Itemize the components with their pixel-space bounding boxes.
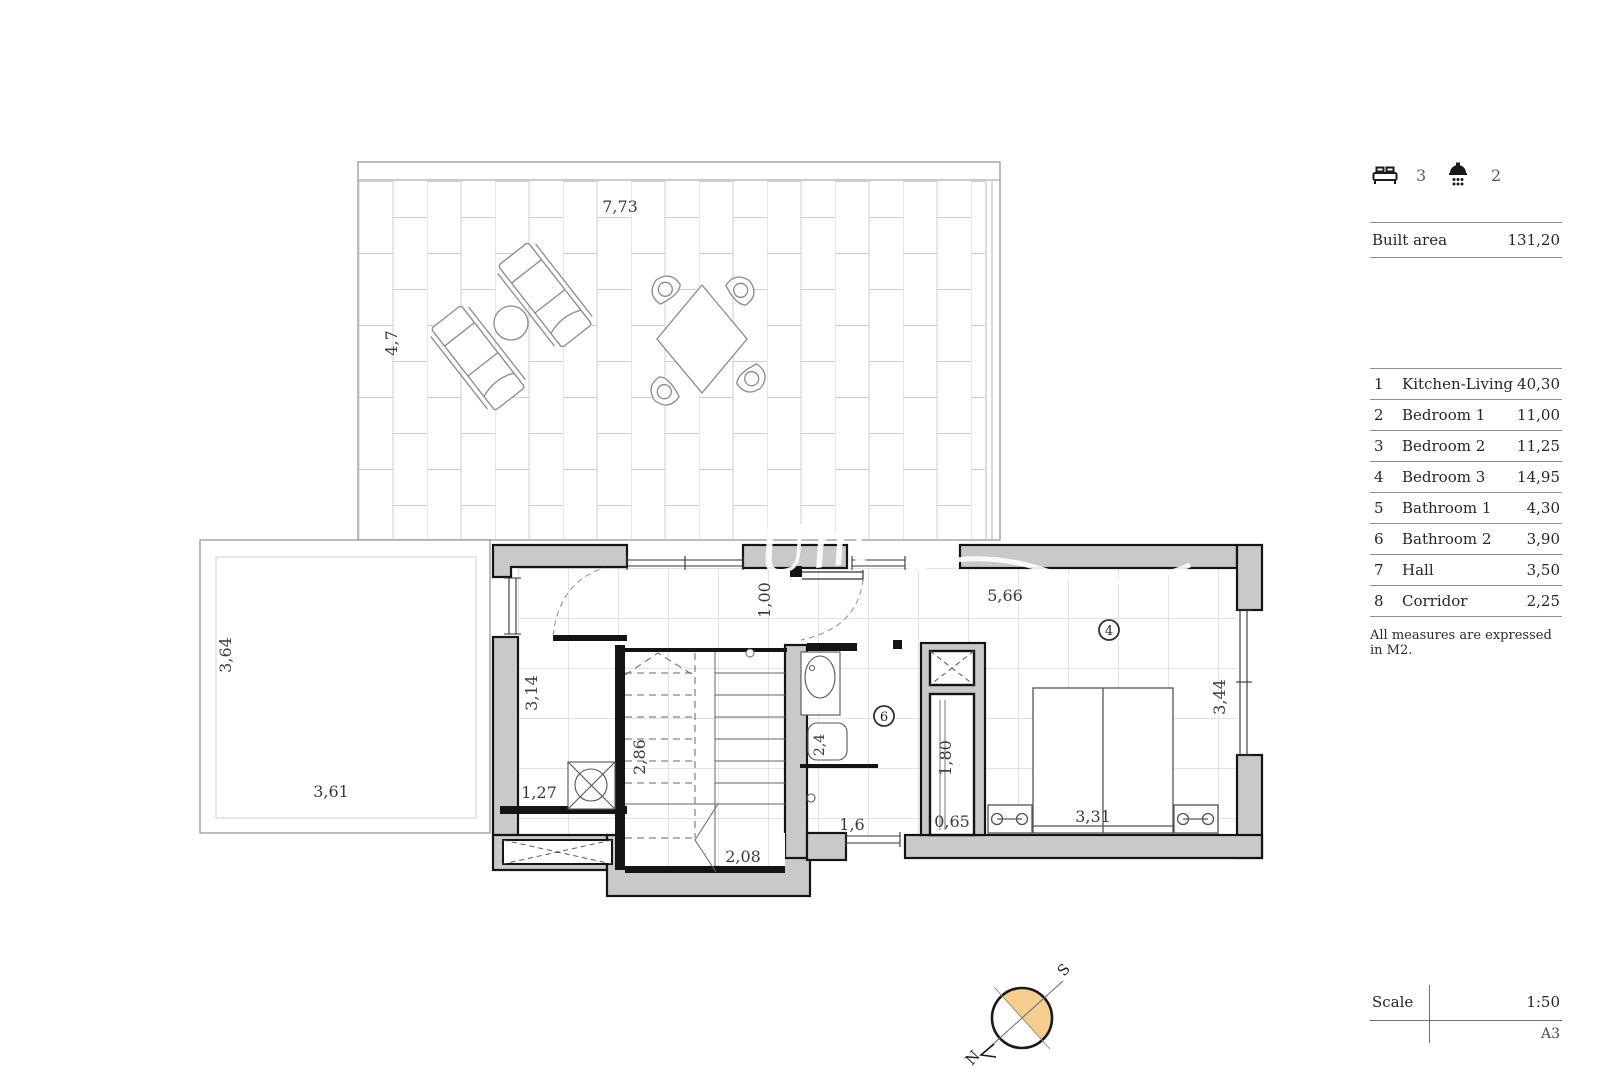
dim-terrace-depth: 4,7	[382, 330, 401, 355]
closet-column: 1,80 0,65	[930, 651, 974, 835]
wall-bottom-mid	[807, 833, 846, 860]
wall-bottom-right	[905, 835, 1262, 858]
bedrooms-count: 3	[1416, 166, 1426, 185]
room-area: 11,25	[1517, 437, 1562, 455]
summary-icons: 3 2	[1370, 160, 1562, 196]
scale-divider	[1429, 985, 1430, 1043]
scale-label: Scale	[1372, 993, 1413, 1011]
dim-closet-width: 0,65	[934, 812, 970, 831]
watermark-text: Um	[753, 504, 872, 590]
dim-closet-depth: 1,80	[936, 740, 955, 776]
room-name: Bedroom 1	[1402, 406, 1517, 424]
built-area-row: Built area 131,20	[1370, 222, 1562, 258]
info-panel: 3 2 Built area 131,20 1 Kitchen-Living 4…	[1370, 0, 1562, 1080]
wall-left	[493, 637, 518, 835]
built-area-value: 131,20	[1508, 231, 1561, 249]
table-row: 3 Bedroom 2 11,25	[1370, 430, 1562, 461]
room-area: 3,90	[1527, 530, 1562, 548]
stair-post	[746, 649, 754, 657]
dim-bath-window: 1,6	[839, 815, 864, 834]
dim-bedroom-depth: 3,44	[1210, 679, 1229, 715]
room-name: Corridor	[1402, 592, 1527, 610]
scale-block: Scale 1:50 A3	[1370, 985, 1562, 1042]
room-marker-bathroom2-label: 6	[880, 710, 888, 725]
side-table	[494, 306, 528, 340]
wall-top-right	[960, 545, 1237, 568]
room-area: 3,50	[1527, 561, 1562, 579]
room-marker-bedroom3-label: 4	[1105, 624, 1113, 639]
wall-stair-bottom	[625, 866, 785, 873]
table-row: 1 Kitchen-Living 40,30	[1370, 368, 1562, 399]
sink-basin	[805, 656, 835, 698]
room-id: 8	[1370, 592, 1402, 610]
room-id: 6	[1370, 530, 1402, 548]
dim-stair-depth: 2,86	[630, 739, 649, 775]
room-area: 14,95	[1517, 468, 1562, 486]
room-name: Bedroom 2	[1402, 437, 1517, 455]
annex-terrace: 3,64 3,61	[200, 540, 490, 833]
table-row: 4 Bedroom 3 14,95	[1370, 461, 1562, 492]
dim-bed-width: 3,31	[1075, 807, 1111, 826]
north-arrow	[981, 1044, 996, 1057]
room-area: 4,30	[1527, 499, 1562, 517]
bath-half-wall	[800, 764, 878, 768]
utility-door-leaf	[553, 635, 627, 641]
room-id: 3	[1370, 437, 1402, 455]
bathrooms-count: 2	[1491, 166, 1501, 185]
room-id: 2	[1370, 406, 1402, 424]
bath-door-leaf	[893, 640, 902, 649]
shower-icon	[1446, 160, 1470, 192]
table-row: 5 Bathroom 1 4,30	[1370, 492, 1562, 523]
stair-floor-grid	[625, 833, 785, 870]
terrace-tiles	[359, 181, 985, 539]
wall-right-upper	[1237, 545, 1262, 610]
compass-north-label: N	[962, 1047, 984, 1069]
room-name: Kitchen-Living	[1402, 375, 1517, 393]
room-name: Bathroom 1	[1402, 499, 1527, 517]
table-row: 8 Corridor 2,25	[1370, 585, 1562, 616]
scale-value: 1:50	[1526, 993, 1560, 1011]
floor-plan-sheet: 7,73 4,7 3,64 3,61	[0, 0, 1620, 1080]
room-id: 7	[1370, 561, 1402, 579]
wall-stair-top	[625, 648, 787, 652]
room-id: 1	[1370, 375, 1402, 393]
sheet-size: A3	[1370, 1021, 1562, 1042]
terrace: 7,73 4,7	[358, 162, 1000, 540]
table-row: 6 Bathroom 2 3,90	[1370, 523, 1562, 554]
compass-rose: N S	[962, 960, 1074, 1069]
wall-stair-left	[615, 645, 625, 870]
dim-hall-length: 5,66	[987, 586, 1023, 605]
dim-utility-depth: 3,14	[522, 675, 541, 711]
room-area: 11,00	[1517, 406, 1562, 424]
room-area: 2,25	[1527, 592, 1562, 610]
room-id: 5	[1370, 499, 1402, 517]
room-name: Hall	[1402, 561, 1527, 579]
room-area: 40,30	[1517, 375, 1562, 393]
built-area-label: Built area	[1372, 231, 1447, 249]
dim-shower-width: 2,4	[812, 734, 828, 756]
table-row: 7 Hall 3,50	[1370, 554, 1562, 585]
compass-south-label: S	[1054, 960, 1074, 980]
dim-stair-width: 2,08	[725, 847, 761, 866]
room-name: Bathroom 2	[1402, 530, 1527, 548]
dim-terrace-width: 7,73	[602, 197, 638, 216]
dim-utility-width: 1,27	[521, 783, 557, 802]
units-note: All measures are expressed in M2.	[1370, 628, 1562, 658]
bed-icon	[1372, 162, 1398, 190]
room-id: 4	[1370, 468, 1402, 486]
table-row: 2 Bedroom 1 11,00	[1370, 399, 1562, 430]
room-areas-table: 1 Kitchen-Living 40,30 2 Bedroom 1 11,00…	[1370, 368, 1562, 617]
wall-bath-top	[807, 643, 857, 651]
dim-annex-width: 3,61	[313, 782, 349, 801]
dim-annex-depth: 3,64	[216, 637, 235, 673]
room-name: Bedroom 3	[1402, 468, 1517, 486]
